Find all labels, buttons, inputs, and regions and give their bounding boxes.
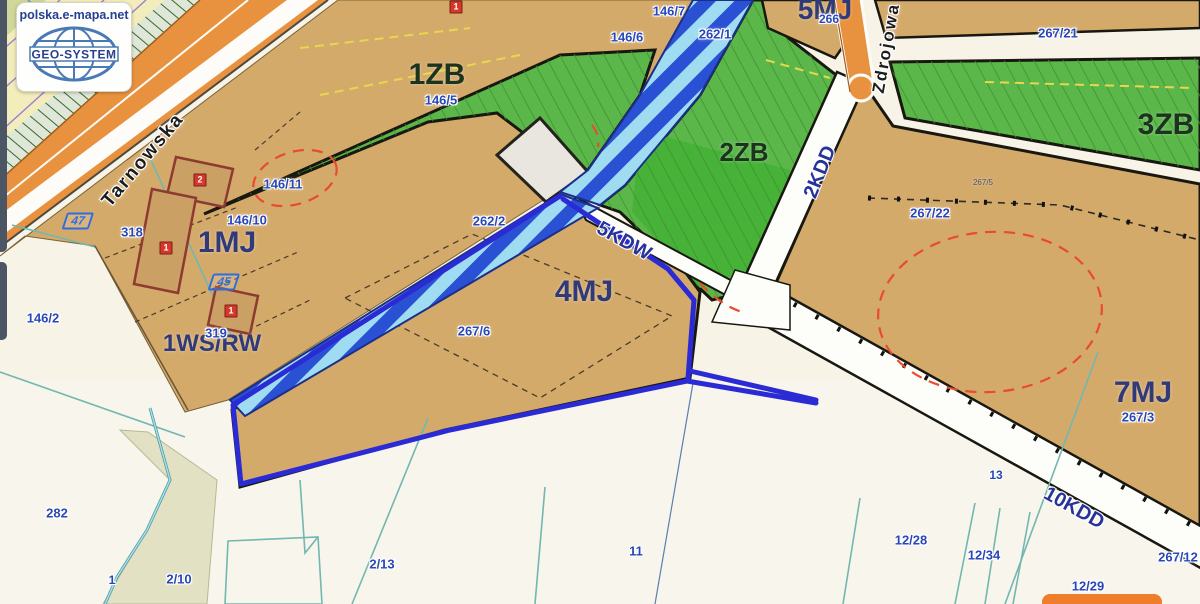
left-panel-handle-bottom[interactable] — [0, 262, 7, 340]
map-viewport[interactable]: TarnowskaZdrojowa1ZB2ZB3ZB1MJ4MJ5MJ7MJ1W… — [0, 0, 1200, 604]
logo-card: polska.e-mapa.net GEO-SYSTEM — [16, 2, 132, 92]
site-title: polska.e-mapa.net — [19, 8, 128, 22]
geo-system-wordmark: GEO-SYSTEM — [31, 48, 116, 62]
bottom-right-button[interactable] — [1042, 594, 1162, 604]
geo-system-globe-icon: GEO-SYSTEM — [28, 24, 120, 84]
map-canvas[interactable] — [0, 0, 1200, 604]
left-panel-handle-top[interactable] — [0, 0, 7, 252]
